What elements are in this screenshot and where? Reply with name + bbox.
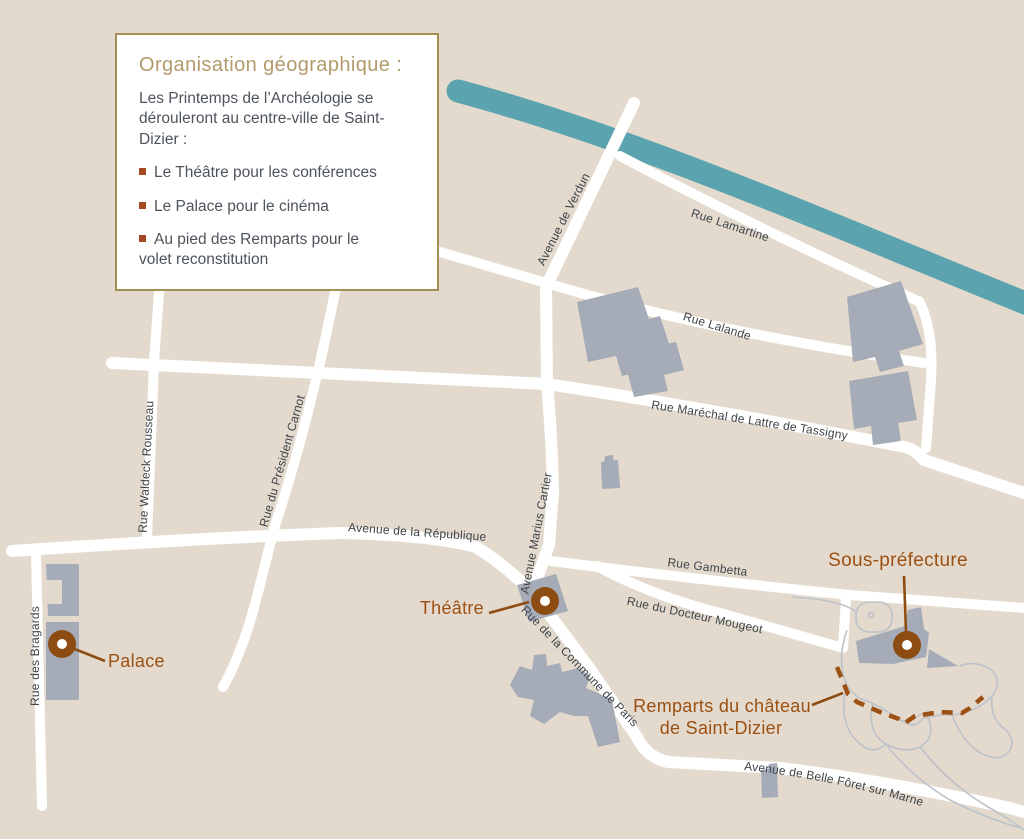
- bullet-square-icon: [139, 168, 146, 175]
- river-path: [458, 91, 1024, 305]
- saint-dizier-event-map: Avenue de Verdun Rue Lamartine Rue Lalan…: [0, 0, 1024, 839]
- legend-item-remparts: Au pied des Remparts pour le volet recon…: [139, 230, 391, 270]
- legend-intro: Les Printemps de l’Archéologie se déroul…: [139, 89, 415, 150]
- legend-bullet-list: Le Théâtre pour les conférences Le Palac…: [139, 163, 415, 270]
- legend-item-label: Le Palace pour le cinéma: [154, 198, 329, 215]
- bullet-square-icon: [139, 202, 146, 209]
- building-sous-prefecture-wing: [927, 649, 958, 668]
- legend-item-palace: Le Palace pour le cinéma: [139, 197, 391, 217]
- remparts-leader-line: [812, 693, 843, 705]
- street-label-marechal: Rue Maréchal de Lattre de Tassigny: [650, 398, 848, 443]
- sous-prefecture-marker-icon: [893, 631, 921, 659]
- remparts-dashed-line: [837, 667, 983, 723]
- legend-item-theatre: Le Théâtre pour les conférences: [139, 163, 391, 183]
- sous-prefecture-label: Sous-préfecture: [828, 550, 968, 571]
- theatre-label: Théâtre: [420, 598, 484, 618]
- remparts-label-line1: Remparts du château: [633, 696, 811, 716]
- street-label-lalande: Rue Lalande: [682, 309, 753, 343]
- bullet-square-icon: [139, 235, 146, 242]
- street-label-bragards: Rue des Bragards: [28, 606, 42, 706]
- palace-label: Palace: [108, 651, 165, 671]
- chateau-pond-outline: [856, 602, 892, 632]
- remparts-label-line2: de Saint-Dizier: [660, 718, 783, 738]
- street-lamartine-connector: [919, 301, 932, 448]
- legend-title: Organisation géographique :: [139, 54, 415, 77]
- palace-marker-icon: [48, 630, 76, 658]
- building-palace-notch: [46, 580, 62, 604]
- legend-item-label: Le Théâtre pour les conférences: [154, 164, 377, 181]
- sous-prefecture-leader-line: [904, 576, 906, 632]
- building-small-center: [601, 455, 620, 489]
- chateau-pond-dot: [869, 613, 874, 618]
- legend-panel: Organisation géographique : Les Printemp…: [115, 33, 439, 291]
- legend-item-label: Au pied des Remparts pour le volet recon…: [139, 231, 359, 268]
